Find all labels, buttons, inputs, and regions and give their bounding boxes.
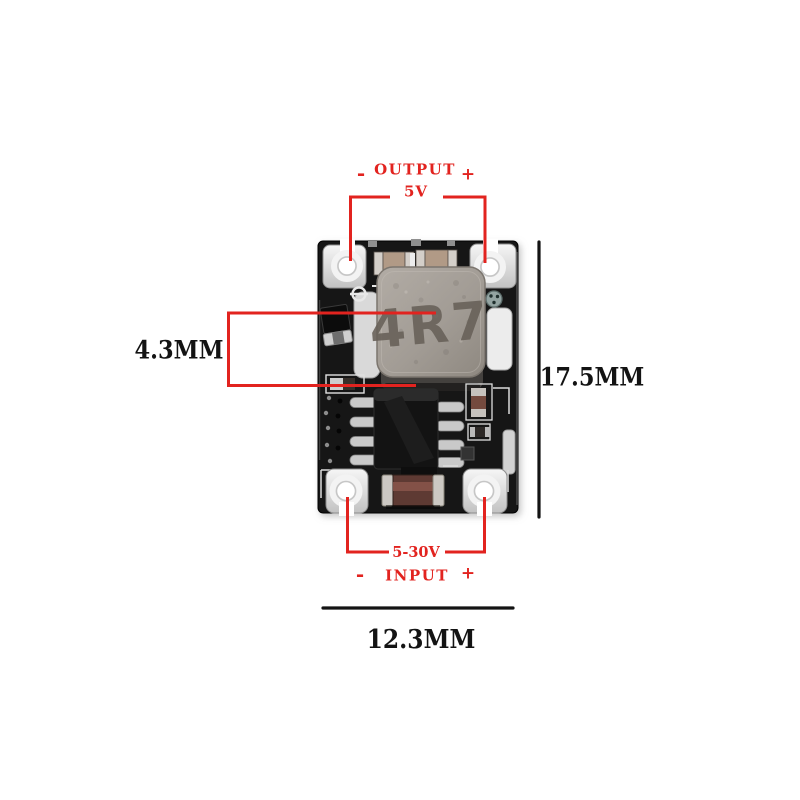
left-transistor [319, 304, 353, 346]
pcb-graphic: 4R7 [0, 0, 800, 800]
annotated-product-image: 4R7 [0, 0, 800, 800]
pcb-board: 4R7 [318, 239, 518, 516]
board-width-dimension: 12.3MM [367, 627, 476, 653]
castellated-pad-top-left [323, 239, 366, 288]
right-edge-pad [503, 430, 515, 474]
output-label: OUTPUT [374, 163, 456, 178]
output-voltage: 5V [404, 185, 428, 200]
output-plus-sign: + [461, 167, 475, 184]
input-label: INPUT [385, 569, 449, 584]
inductor: 4R7 [367, 267, 493, 391]
input-minus-sign: - [356, 564, 364, 584]
inductor-width-dimension: 4.3MM [135, 338, 224, 363]
input-voltage: 5-30V [392, 546, 440, 561]
input-plus-sign: + [461, 566, 475, 583]
input-capacitor [382, 475, 444, 509]
output-minus-sign: - [357, 163, 365, 183]
board-height-dimension: 17.5MM [540, 365, 645, 390]
inductor-marking: 4R7 [367, 291, 493, 361]
